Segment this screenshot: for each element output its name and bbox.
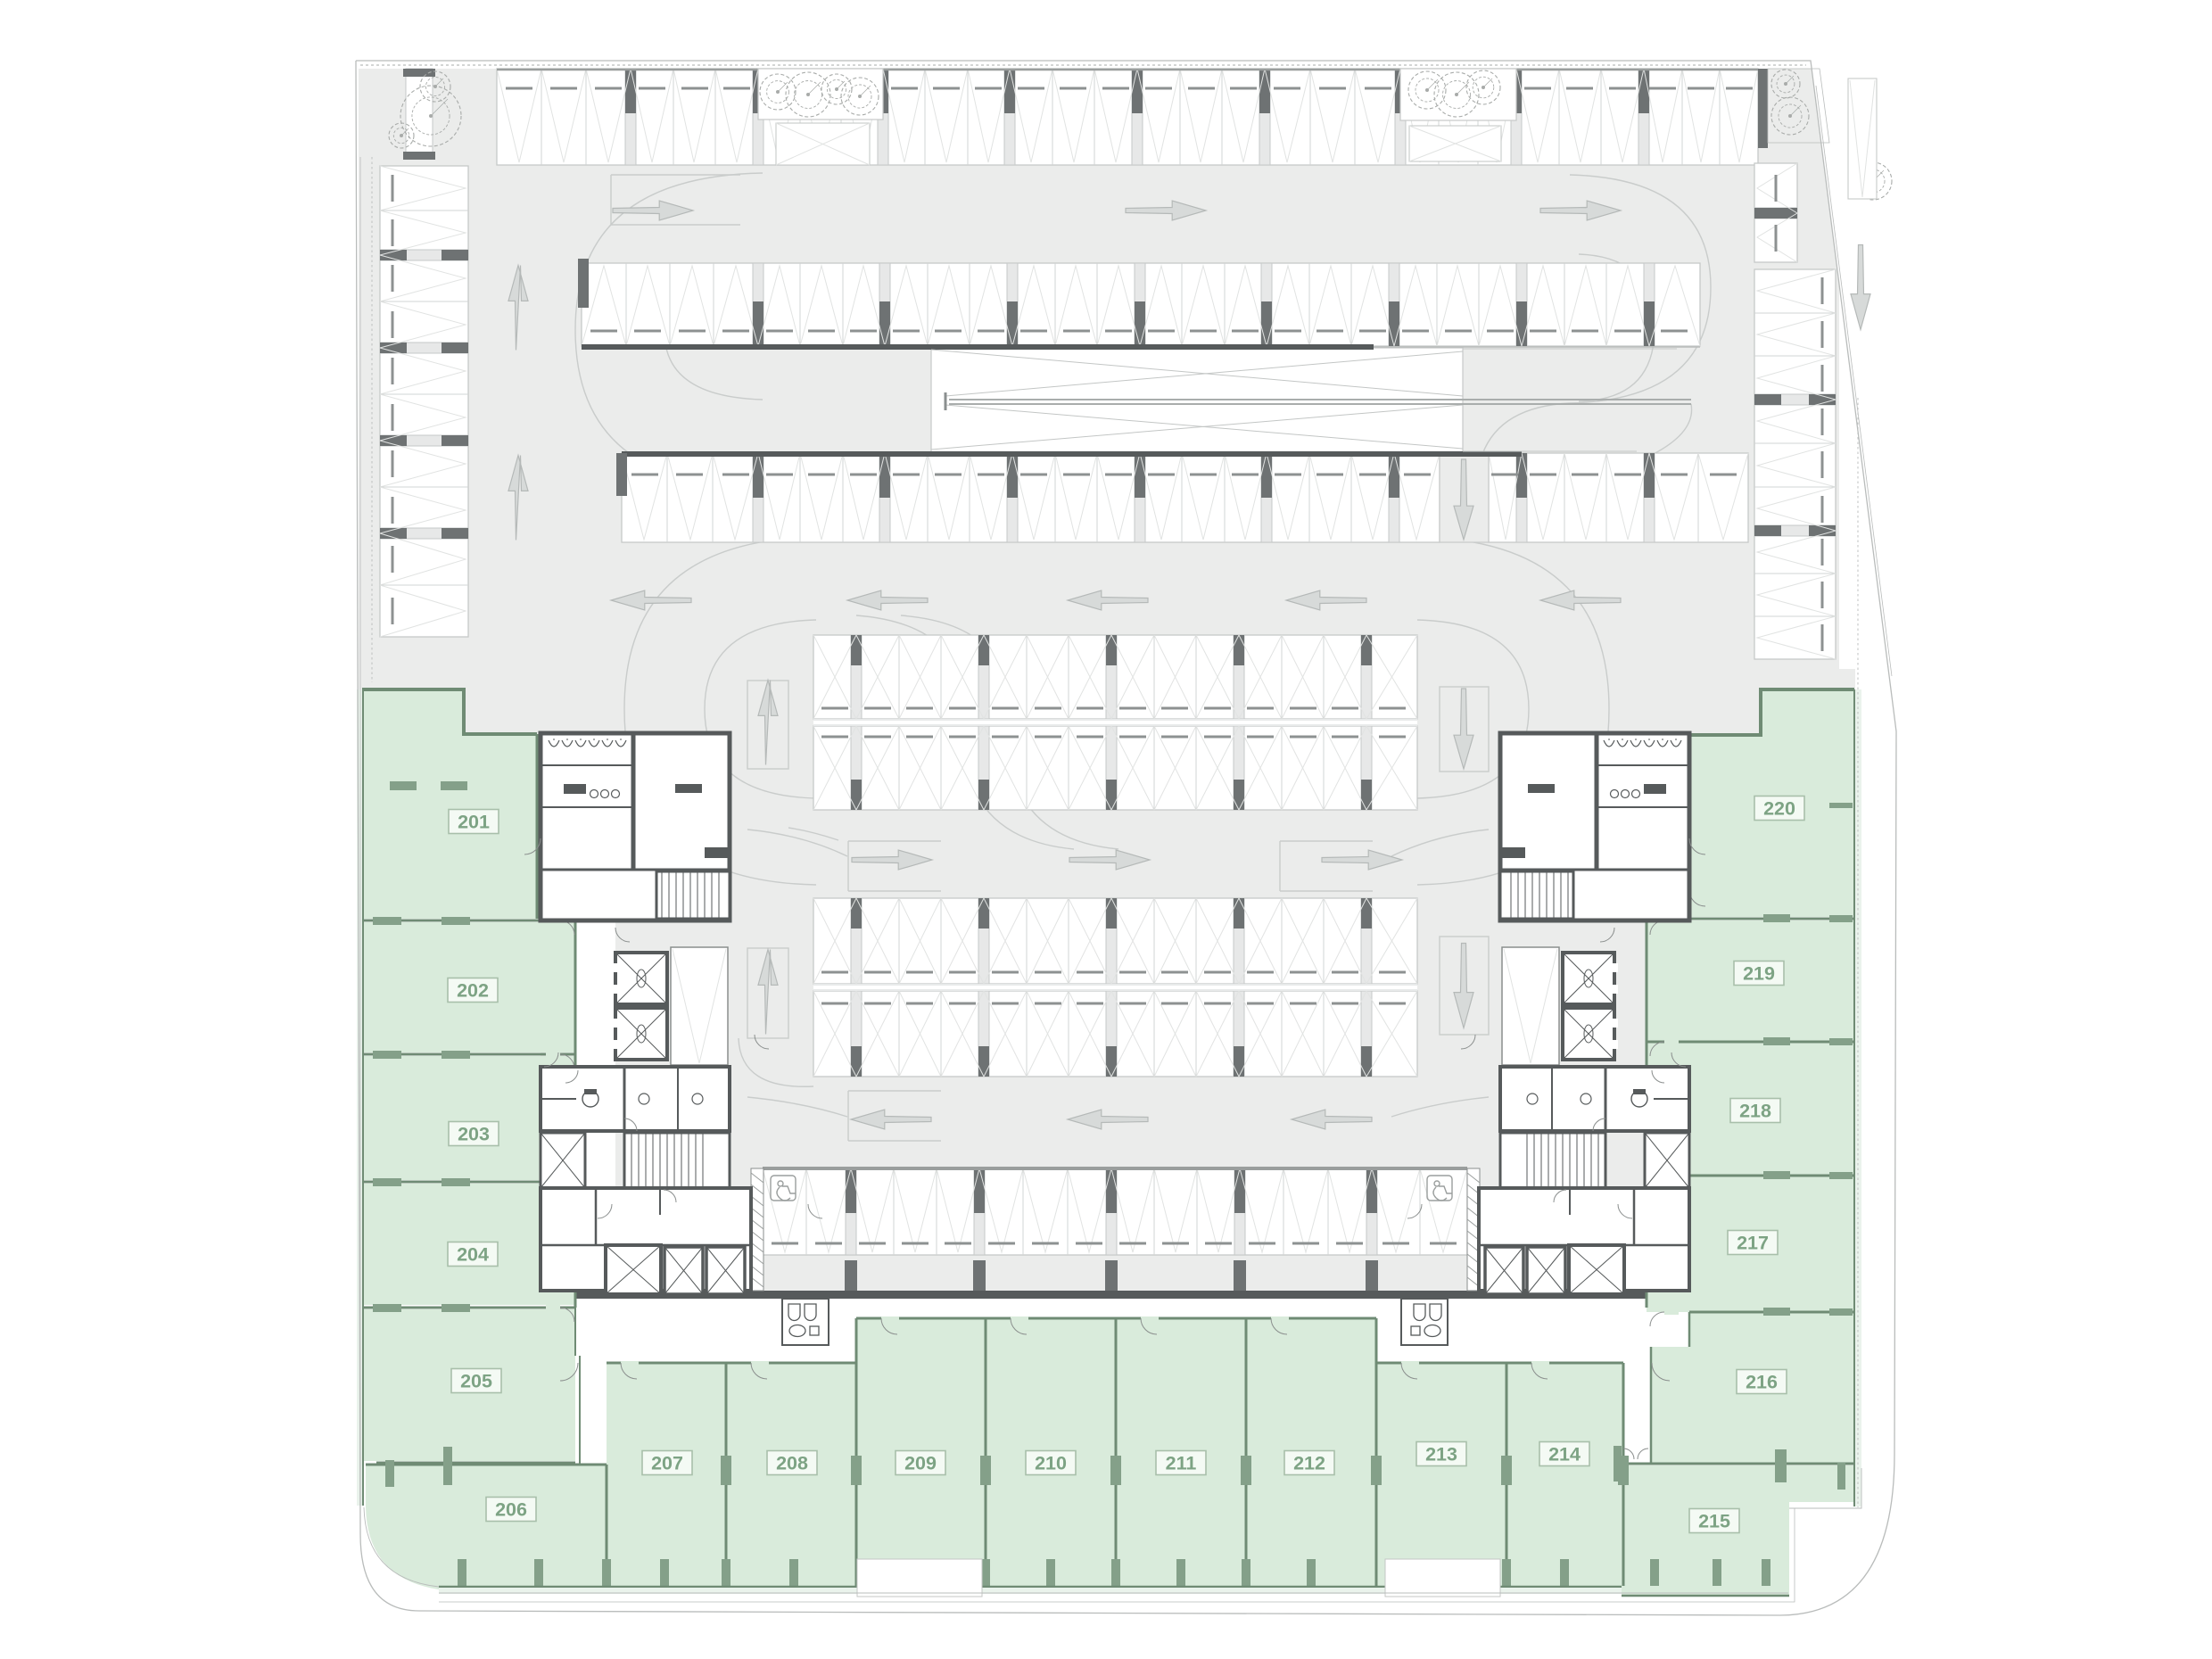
svg-text:206: 206	[495, 1499, 527, 1521]
svg-text:218: 218	[1739, 1101, 1771, 1122]
svg-text:219: 219	[1743, 963, 1775, 985]
svg-text:209: 209	[904, 1453, 937, 1474]
svg-text:213: 213	[1425, 1444, 1457, 1465]
svg-text:203: 203	[458, 1124, 490, 1145]
svg-text:216: 216	[1746, 1372, 1778, 1393]
svg-text:208: 208	[776, 1453, 808, 1474]
svg-text:214: 214	[1548, 1444, 1581, 1465]
svg-text:220: 220	[1763, 798, 1795, 820]
svg-text:205: 205	[460, 1371, 492, 1392]
svg-text:204: 204	[457, 1244, 489, 1266]
svg-text:212: 212	[1293, 1453, 1325, 1474]
svg-text:211: 211	[1166, 1453, 1197, 1474]
svg-text:217: 217	[1737, 1233, 1769, 1254]
svg-text:215: 215	[1698, 1511, 1730, 1532]
svg-text:202: 202	[457, 980, 489, 1002]
svg-text:210: 210	[1035, 1453, 1067, 1474]
svg-text:201: 201	[458, 812, 490, 833]
svg-text:207: 207	[651, 1453, 683, 1474]
